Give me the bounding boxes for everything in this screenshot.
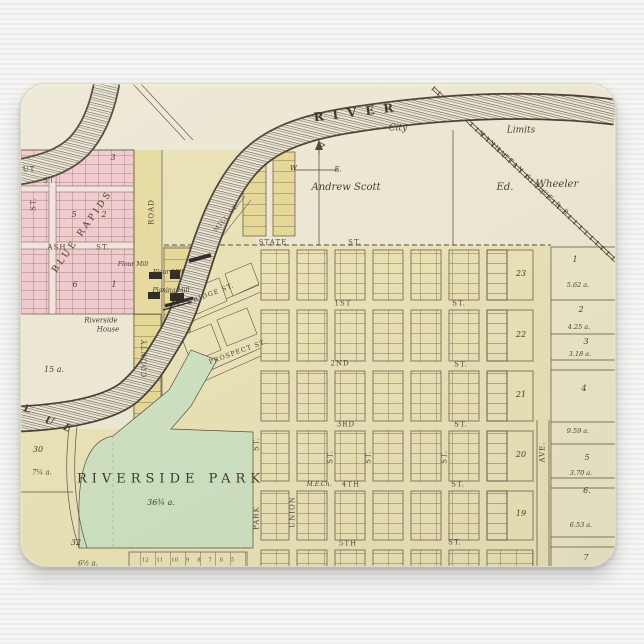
riverside-park-label: RIVERSIDE PARK: [77, 473, 265, 486]
ash-street-label: ASH: [48, 245, 67, 252]
parcel-4-number: 4: [581, 385, 586, 393]
parcel-32-acres: 6½ a.: [78, 561, 98, 568]
first-street-label: 1ST: [335, 301, 352, 308]
ash-street-st: ST.: [96, 245, 110, 252]
owner-andrew-scott: Andrew Scott: [311, 183, 380, 193]
riverside-park-acres: 36¾ a.: [147, 499, 175, 507]
parcel-3-number: 3: [583, 338, 588, 346]
limits-label: Limits: [507, 127, 536, 136]
vertical-street-st-1: ST.: [328, 450, 335, 464]
third-street-label: 3RD: [337, 422, 355, 429]
parcel-5-number: 5: [584, 454, 589, 462]
parcel-30-acres: 7¼ a.: [32, 470, 52, 477]
me-church-label: M.E.Ch.: [307, 482, 332, 488]
pink-block-1: 1: [111, 281, 116, 289]
flour-mill-label-2: Flour Mill: [153, 270, 183, 276]
pink-block-2: 2: [101, 211, 106, 219]
parcel-3-acres: 3.18 a.: [569, 351, 591, 358]
numbered-blocks: [487, 250, 533, 540]
parcel-5-acres: 3.70 a.: [570, 470, 592, 477]
flour-mill-label-1: Flour Mill: [118, 262, 148, 268]
pink-street-st-vertical: ST.: [31, 197, 38, 211]
parcel-6-acres: 6.53 a.: [570, 522, 592, 529]
county-road-label: ROAD: [149, 199, 156, 225]
second-street-label: 2ND: [330, 361, 349, 368]
first-street-st: ST.: [452, 301, 466, 308]
park-street-label: PARK: [254, 506, 261, 530]
block-20: 20: [516, 451, 526, 459]
block-19: 19: [516, 510, 526, 518]
parcel-1-acres: 5.62 a.: [567, 282, 589, 289]
mousepad: RIVER City Limits MANHATTAN & BLUE R.R. …: [20, 83, 616, 567]
parcel-1-number: 1: [572, 256, 577, 264]
riverside-house-line2: House: [97, 327, 120, 334]
vertical-street-st-3: ST.: [442, 450, 449, 464]
county-label: COUNTY: [142, 339, 149, 377]
vertical-street-st-2: ST.: [366, 450, 373, 464]
parcel-32: 32: [71, 539, 81, 547]
third-street-st: ST.: [454, 422, 468, 429]
block-23: 23: [516, 270, 526, 278]
parcel-959-acres: 9.59 a.: [567, 428, 589, 435]
state-street-label: STATE: [259, 240, 288, 247]
product-photo: RIVER City Limits MANHATTAN & BLUE R.R. …: [0, 0, 644, 644]
parcel-30: 30: [33, 446, 43, 454]
compass-east: E.: [334, 167, 341, 174]
block-21: 21: [516, 391, 526, 399]
owner-ed: Ed.: [497, 183, 514, 193]
fourth-street-label: 4TH: [342, 482, 360, 489]
avenue-label: AVE.: [540, 441, 547, 462]
parcel-7-number: 7: [583, 554, 588, 562]
planing-mill-label: Planing Mill: [153, 288, 190, 294]
fifth-street-st: ST.: [448, 540, 462, 547]
compass-west: W.: [290, 166, 298, 173]
block-22: 22: [516, 331, 526, 339]
parcel-15a: 15 a.: [44, 366, 64, 374]
parcel-2-acres: 4.25 a.: [568, 324, 590, 331]
city-label: City: [389, 125, 407, 134]
fifth-street-label: 5TH: [339, 541, 357, 548]
parcel-2-number: 2: [578, 306, 583, 314]
union-street-label: UNION: [290, 496, 297, 528]
second-street-st: ST.: [454, 362, 468, 369]
pink-street-st: ST.: [43, 178, 57, 185]
parcel-6-number: 6.: [583, 487, 591, 495]
park-south-lot-numbers: 12 11 10 9 8 7 6 5: [142, 558, 235, 564]
riverside-house-line1: Riverside: [84, 318, 117, 325]
pink-block-3: 3: [110, 154, 115, 162]
park-street-st: ST.: [254, 437, 261, 451]
fourth-street-st: ST.: [451, 482, 465, 489]
pink-block-6: 6: [72, 281, 77, 289]
pink-block-5: 5: [71, 211, 76, 219]
owner-wheeler: Wheeler: [536, 180, 578, 190]
state-street-st: ST.: [348, 240, 362, 247]
cut-street-label: UT: [23, 167, 36, 174]
